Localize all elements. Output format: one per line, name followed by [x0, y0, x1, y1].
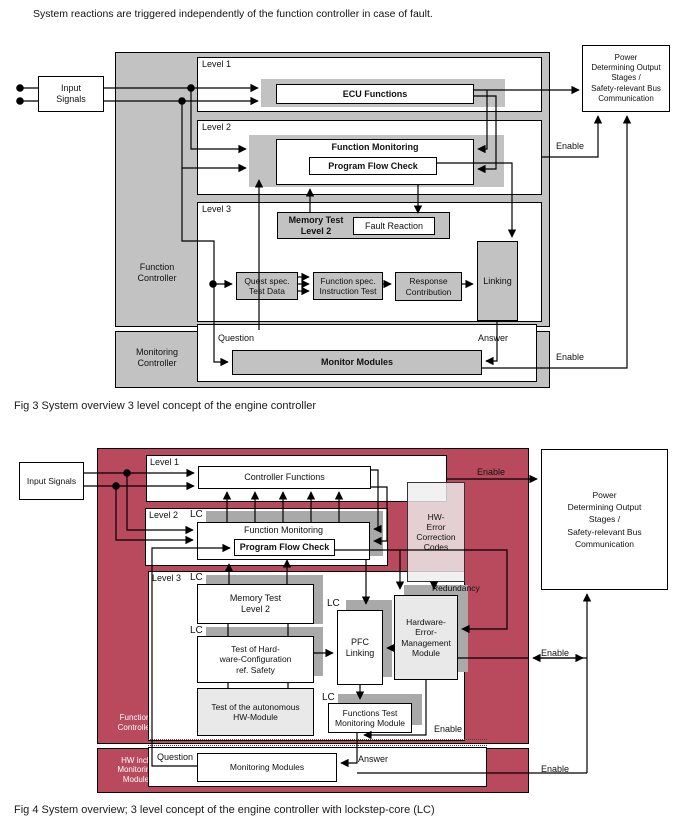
fig3-connectors	[17, 85, 627, 368]
fig4-connectors	[84, 470, 587, 773]
document-page: System reactions are triggered independe…	[0, 0, 679, 823]
connector-lines	[0, 0, 679, 823]
